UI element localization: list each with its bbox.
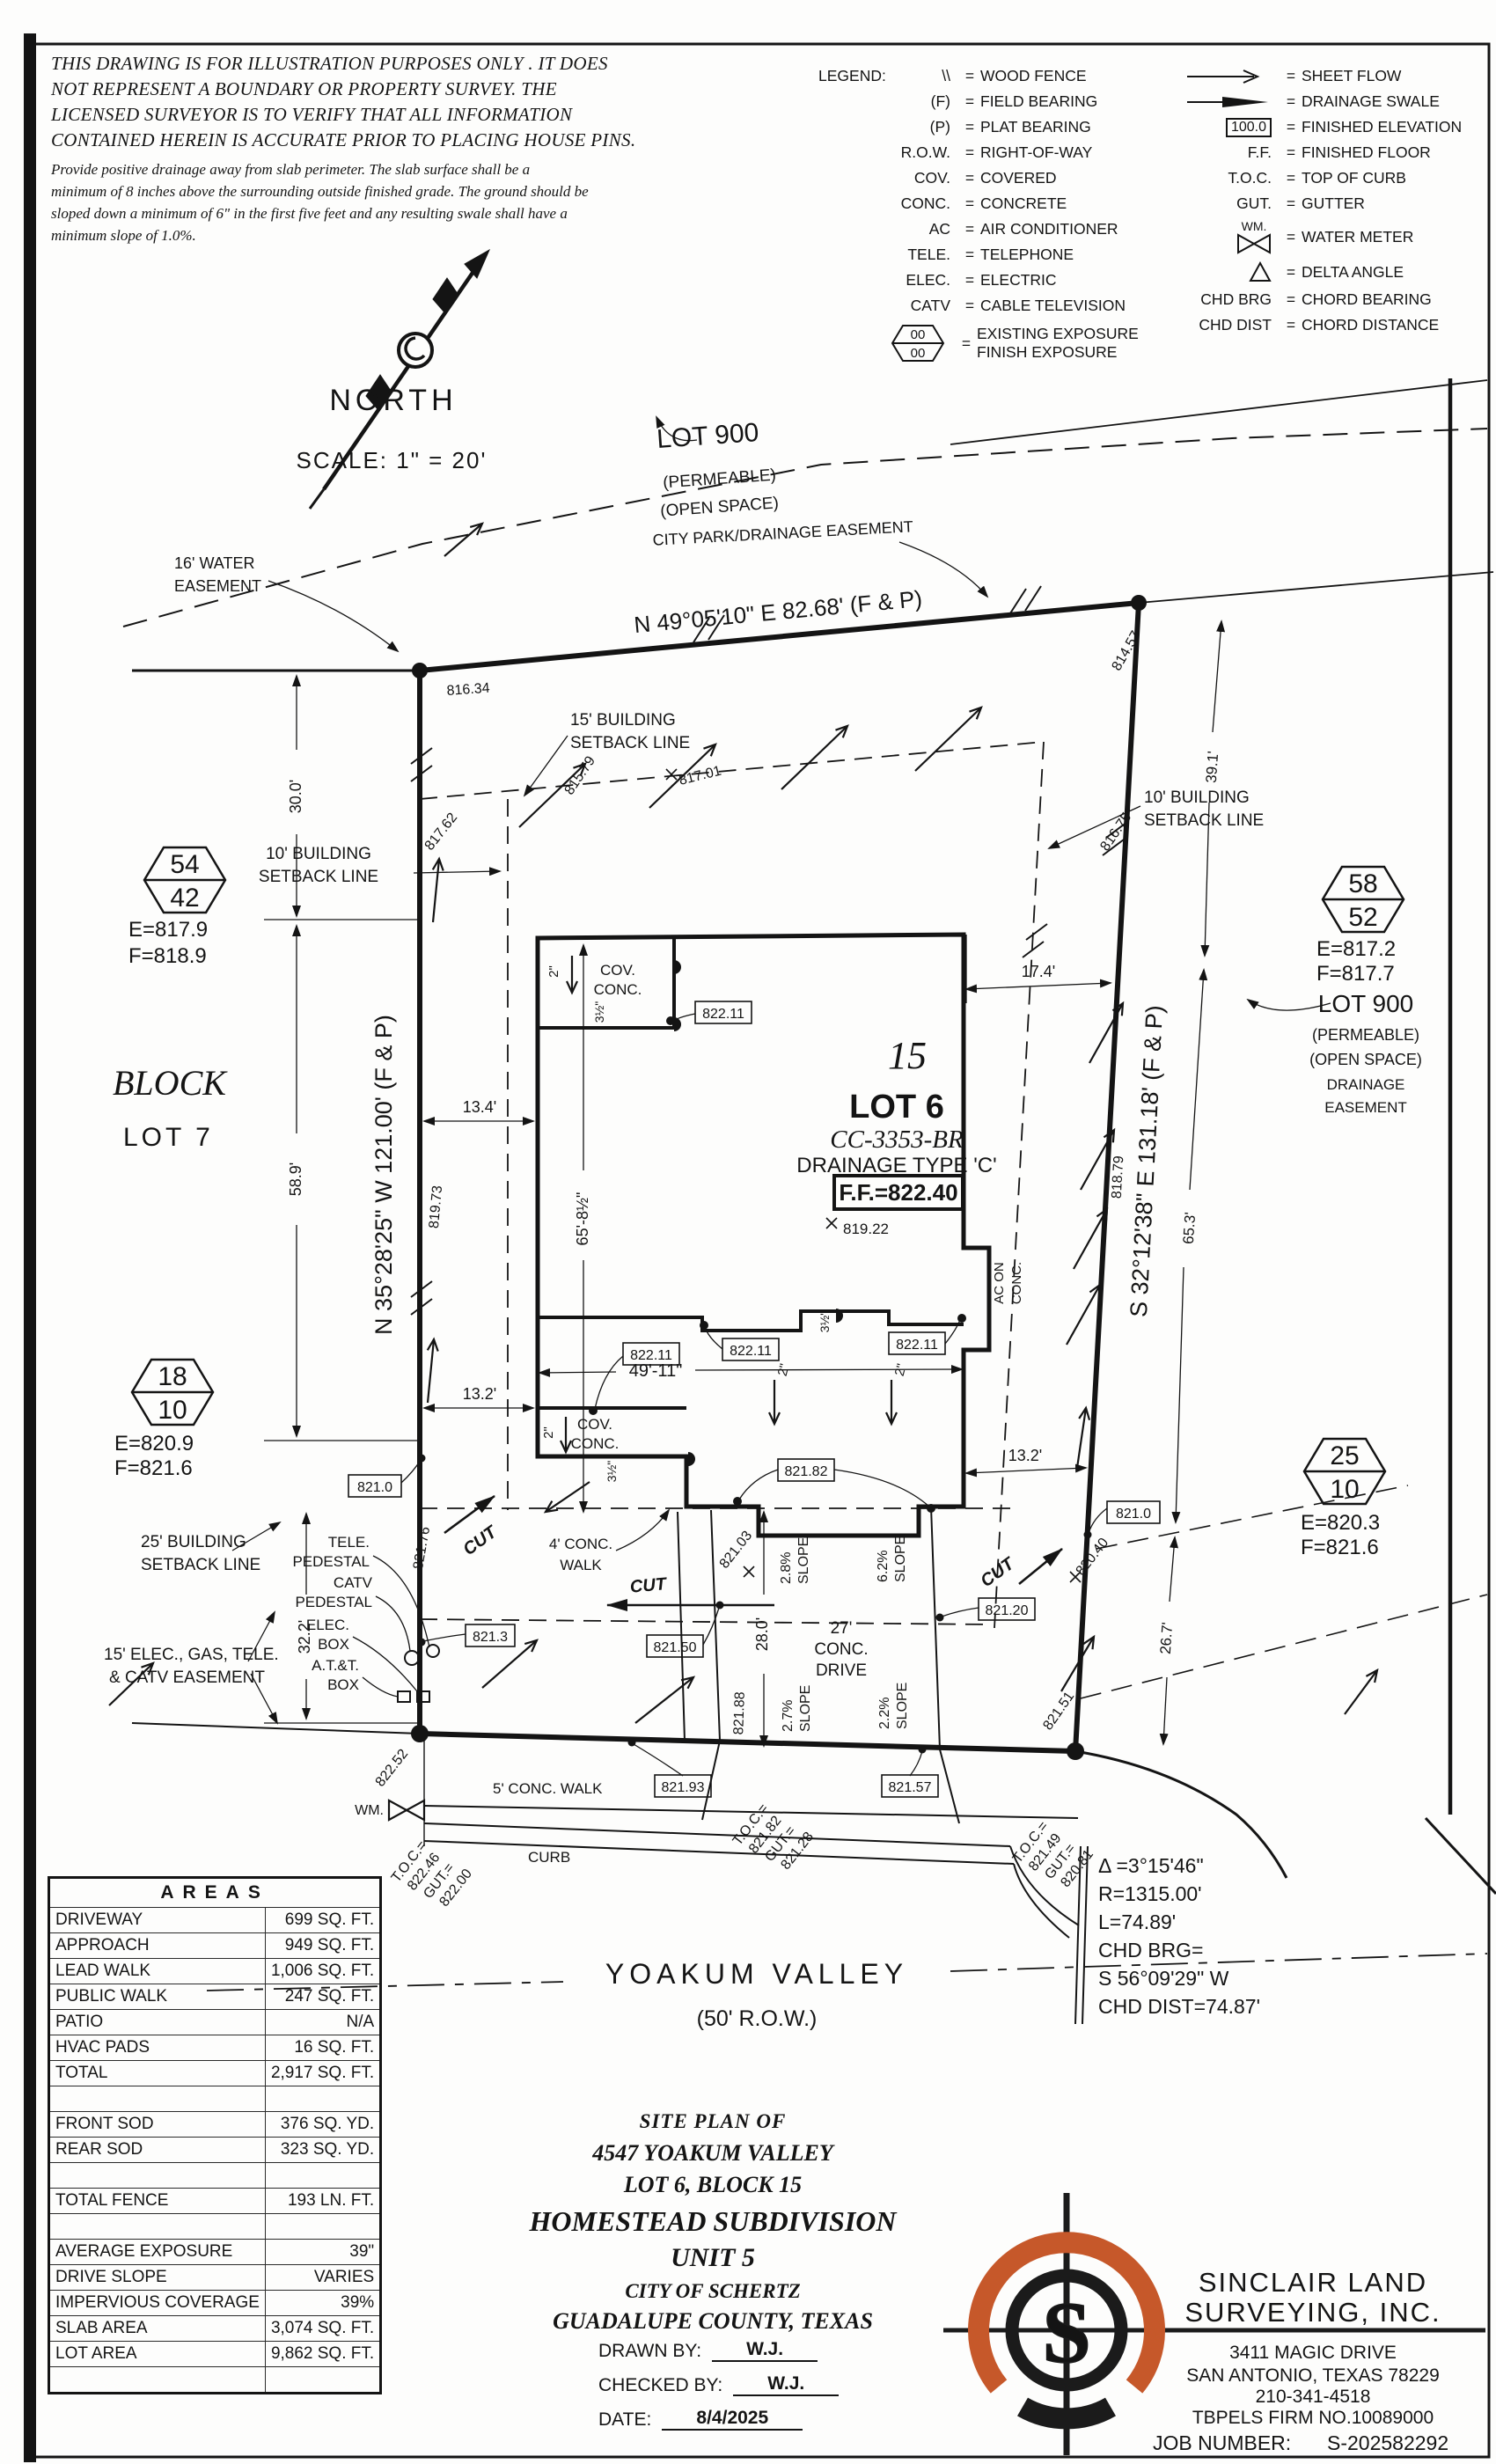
spot-821-76: 821.76 xyxy=(411,1526,433,1571)
city-park-easement: CITY PARK/DRAINAGE EASEMENT xyxy=(652,517,913,548)
hex54-bot: 42 xyxy=(170,884,199,913)
hex25-bot: 10 xyxy=(1330,1475,1359,1504)
area-value: 247 SQ. FT. xyxy=(265,1984,380,2010)
street-name: YOAKUM VALLEY xyxy=(605,1958,908,1990)
scale-label: SCALE: 1" = 20' xyxy=(297,447,488,473)
dim-35-step: 3½" xyxy=(818,1311,832,1332)
equals: = xyxy=(959,118,980,136)
disclaimer-line: CONTAINED HEREIN IS ACCURATE PRIOR TO PL… xyxy=(51,128,790,153)
slope-22: 2.2% xyxy=(877,1698,892,1729)
table-row: DRIVEWAY699 SQ. FT. xyxy=(49,1908,381,1933)
dim-391: 39.1' xyxy=(1203,751,1221,784)
house-block-num: 15 xyxy=(888,1034,927,1077)
equals: = xyxy=(959,271,980,290)
dim-35-porch: 3½" xyxy=(592,1001,606,1023)
adjacent-lot7: LOT 7 xyxy=(123,1123,214,1152)
area-label: DRIVEWAY xyxy=(49,1908,266,1933)
slope-27-word: SLOPE xyxy=(798,1685,813,1732)
dim-2in-porch: 2" xyxy=(546,965,561,978)
ac-sym: AC xyxy=(818,220,959,238)
toc-sym: T.O.C. xyxy=(1166,169,1280,187)
legend-desc: FINISHED ELEVATION xyxy=(1302,118,1462,136)
equals: = xyxy=(1280,118,1302,136)
drainage-note-line: sloped down a minimum of 6" in the first… xyxy=(51,202,790,224)
table-row: HVAC PADS16 SQ. FT. xyxy=(49,2035,381,2061)
patio-conc: CONC. xyxy=(571,1435,620,1452)
hex18-f: F=821.6 xyxy=(114,1456,193,1480)
curve-radius: R=1315.00' xyxy=(1098,1882,1202,1905)
legend-desc: CHORD BEARING xyxy=(1302,290,1432,309)
setback25-l2: SETBACK LINE xyxy=(141,1556,260,1574)
water-meter-icon xyxy=(389,1800,424,1820)
disclaimer-line: THIS DRAWING IS FOR ILLUSTRATION PURPOSE… xyxy=(51,51,790,77)
legend-desc: WOOD FENCE xyxy=(980,67,1087,85)
sheet-flow-icon xyxy=(1187,70,1272,84)
hex25-f: F=821.6 xyxy=(1301,1536,1379,1559)
box-821-93: 821.93 xyxy=(662,1780,705,1795)
area-label: FRONT SOD xyxy=(49,2112,266,2138)
area-label xyxy=(49,2367,266,2394)
firm-addr-1: 3411 MAGIC DRIVE xyxy=(1229,2343,1397,2363)
table-row: DRIVE SLOPEVARIES xyxy=(49,2265,381,2291)
title-line-1: SITE PLAN OF xyxy=(493,2110,933,2133)
hex18-e: E=820.9 xyxy=(114,1432,194,1456)
area-label: REAR SOD xyxy=(49,2138,266,2163)
dim-2in-step1: 2" xyxy=(775,1362,793,1378)
spot-820-40: 820.40 xyxy=(1074,1536,1112,1579)
house-spot-819-22: 819.22 xyxy=(843,1221,889,1237)
legend-desc: CHORD DISTANCE xyxy=(1302,316,1439,334)
street-row: (50' R.O.W.) xyxy=(697,2006,818,2031)
date-value: 8/4/2025 xyxy=(662,2408,803,2431)
ff-sym: F.F. xyxy=(1166,143,1280,162)
checked-by-label: CHECKED BY: xyxy=(598,2375,722,2396)
curve-chd-brg-value: S 56°09'29" W xyxy=(1098,1967,1229,1990)
porch-conc: CONC. xyxy=(594,981,642,998)
dim-653: 65.3' xyxy=(1180,1212,1199,1245)
firm-phone: 210-341-4518 xyxy=(1256,2387,1371,2407)
delta-angle-icon xyxy=(1249,261,1272,282)
area-label: SLAB AREA xyxy=(49,2316,266,2342)
hex54-e: E=817.9 xyxy=(128,918,208,942)
wm-sym-label: WM. xyxy=(1236,219,1272,233)
dim-132-right: 13.2' xyxy=(1008,1447,1042,1464)
street-labels: WM. CURB YOAKUM VALLEY (50' R.O.W.) T.O.… xyxy=(355,1797,1096,2031)
row-sym: R.O.W. xyxy=(818,143,959,162)
box-821-82: 821.82 xyxy=(785,1464,828,1479)
bearing-left: N 35°28'25" W 121.00' (F & P) xyxy=(370,1015,397,1335)
equals: = xyxy=(1280,92,1302,111)
areas-table: AREAS DRIVEWAY699 SQ. FT. APPROACH949 SQ… xyxy=(48,1876,382,2394)
spot-816-75: 816.75 xyxy=(1097,810,1134,854)
drive-conc: CONC. xyxy=(814,1640,868,1659)
area-value: 699 SQ. FT. xyxy=(265,1908,380,1933)
water-easement-l2: EASEMENT xyxy=(174,577,261,595)
logo-letter: S xyxy=(1042,2284,1091,2381)
wm-label: WM. xyxy=(355,1803,384,1818)
area-value: 949 SQ. FT. xyxy=(265,1933,380,1959)
drainage-swale-arrows xyxy=(444,1496,1062,1605)
legend-desc: TOP OF CURB xyxy=(1302,169,1406,187)
title-line-6: CITY OF SCHERTZ xyxy=(493,2280,933,2303)
dim-174: 17.4' xyxy=(1022,963,1055,980)
legend-desc: WATER METER xyxy=(1302,228,1413,246)
area-label: PATIO xyxy=(49,2010,266,2035)
date-label: DATE: xyxy=(598,2409,651,2431)
area-value: 193 LN. FT. xyxy=(265,2189,380,2214)
curve-chd-dist: CHD DIST=74.87' xyxy=(1098,1995,1260,2018)
conc-sym: CONC. xyxy=(818,194,959,213)
house-drainage-type: DRAINAGE TYPE 'C' xyxy=(796,1154,996,1177)
area-value: 1,006 SQ. FT. xyxy=(265,1959,380,1984)
drainage-note-line: Provide positive drainage away from slab… xyxy=(51,158,790,180)
box-821-50: 821.50 xyxy=(654,1640,697,1655)
slope-28: 2.8% xyxy=(779,1552,794,1584)
area-value: 3,074 SQ. FT. xyxy=(265,2316,380,2342)
firm-name-2: SURVEYING, INC. xyxy=(1184,2297,1441,2328)
legend-desc: COVERED xyxy=(980,169,1057,187)
fe-box-2: 822.11 xyxy=(730,1344,772,1359)
area-value: 39% xyxy=(265,2291,380,2316)
legend-desc: GUTTER xyxy=(1302,194,1365,213)
ac-on-label: AC ON xyxy=(992,1262,1007,1304)
north-label: NORTH xyxy=(329,384,457,417)
table-row: LOT AREA9,862 SQ. FT. xyxy=(49,2342,381,2367)
area-label xyxy=(49,2086,266,2112)
table-row: LEAD WALK1,006 SQ. FT. xyxy=(49,1959,381,1984)
elec-box-l2: BOX xyxy=(318,1636,349,1653)
area-label: HVAC PADS xyxy=(49,2035,266,2061)
house-plan-code: CC-3353-BR xyxy=(830,1126,964,1154)
firm-addr-2: SAN ANTONIO, TEXAS 78229 xyxy=(1186,2365,1440,2386)
table-row: APPROACH949 SQ. FT. xyxy=(49,1933,381,1959)
chd-dist-sym: CHD DIST xyxy=(1166,316,1280,334)
table-row xyxy=(49,2367,381,2394)
equals: = xyxy=(1280,143,1302,162)
legend-desc: FINISHED FLOOR xyxy=(1302,143,1431,162)
disclaimer-block: THIS DRAWING IS FOR ILLUSTRATION PURPOSE… xyxy=(51,51,790,246)
title-line-5: UNIT 5 xyxy=(493,2243,933,2273)
water-meter-legend-icon xyxy=(1236,233,1272,254)
dim-30: 30.0' xyxy=(287,780,304,813)
legend-desc: SHEET FLOW xyxy=(1302,67,1401,85)
tele-sym: TELE. xyxy=(818,246,959,264)
lot900-right-drainage: DRAINAGE xyxy=(1327,1076,1405,1093)
bearing-top: N 49°05'10" E 82.68' (F & P) xyxy=(633,585,923,638)
area-label: PUBLIC WALK xyxy=(49,1984,266,2010)
fe-box-1: 822.11 xyxy=(630,1348,672,1363)
equals: = xyxy=(959,246,980,264)
dim-2in-step2: 2" xyxy=(892,1362,910,1378)
spot-818-79: 818.79 xyxy=(1110,1155,1127,1199)
legend-desc: DRAINAGE SWALE xyxy=(1302,92,1440,111)
table-row: SLAB AREA3,074 SQ. FT. xyxy=(49,2316,381,2342)
equals: = xyxy=(959,169,980,187)
curb-label: CURB xyxy=(528,1849,570,1866)
spot-816-34: 816.34 xyxy=(446,681,490,699)
firm-tbpels: TBPELS FIRM NO.10089000 xyxy=(1192,2408,1434,2428)
disclaimer-line: LICENSED SURVEYOR IS TO VERIFY THAT ALL … xyxy=(51,102,790,128)
lot900-right-easement: EASEMENT xyxy=(1324,1099,1407,1116)
firm-name-1: SINCLAIR LAND xyxy=(1199,2267,1427,2298)
setback10-left-l1: 10' BUILDING xyxy=(266,845,371,863)
street-lines xyxy=(207,1823,1487,2024)
lot900-top-openspace: (OPEN SPACE) xyxy=(660,494,780,520)
legend-desc: RIGHT-OF-WAY xyxy=(980,143,1092,162)
wood-fence-icon: \\ xyxy=(887,67,959,85)
firm-info: SINCLAIR LAND SURVEYING, INC. 3411 MAGIC… xyxy=(1153,2267,1448,2454)
hex54-top: 54 xyxy=(170,850,199,879)
equals: = xyxy=(959,194,980,213)
area-value: 16 SQ. FT. xyxy=(265,2035,380,2061)
spot-821-03: 821.03 xyxy=(717,1529,756,1572)
elec-box-l1: ELEC. xyxy=(306,1617,349,1633)
job-number-value: S-202582292 xyxy=(1327,2431,1448,2454)
ac-on-conc-label: AC ON CONC. xyxy=(992,1262,1024,1304)
house-ff: F.F.=822.40 xyxy=(839,1179,957,1206)
hex58-top: 58 xyxy=(1348,869,1377,898)
box-821-57: 821.57 xyxy=(889,1780,932,1795)
dim-2in-patio: 2" xyxy=(541,1426,556,1439)
legend-desc: FIELD BEARING xyxy=(980,92,1097,111)
drainage-swale-icon xyxy=(1187,95,1272,109)
att-box-l1: A.T.&T. xyxy=(312,1657,359,1674)
area-label: LOT AREA xyxy=(49,2342,266,2367)
table-row: PUBLIC WALK247 SQ. FT. xyxy=(49,1984,381,2010)
utility-labels: TELE. PEDESTAL CATV PEDESTAL ELEC. BOX A… xyxy=(292,1534,372,1693)
catv-pedestal-l1: CATV xyxy=(334,1574,373,1591)
equals: = xyxy=(1280,194,1302,213)
water-easement-l1: 16' WATER xyxy=(174,554,254,572)
equals: = xyxy=(1280,228,1302,246)
legend-desc: PLAT BEARING xyxy=(980,118,1091,136)
cut-label-1: CUT xyxy=(459,1522,502,1559)
area-value: VARIES xyxy=(265,2265,380,2291)
box-821-20: 821.20 xyxy=(986,1603,1029,1618)
equals: = xyxy=(956,334,977,353)
signoff-block: DRAWN BY:W.J. CHECKED BY:W.J. DATE:8/4/2… xyxy=(598,2339,915,2442)
fe-box-porch: 822.11 xyxy=(702,1007,744,1022)
area-value xyxy=(265,2367,380,2394)
legend-desc: DELTA ANGLE xyxy=(1302,263,1404,282)
elec-sym: ELEC. xyxy=(818,271,959,290)
catv-sym: CATV xyxy=(818,297,959,315)
hex18-bot: 10 xyxy=(158,1396,187,1425)
curve-data: Δ =3°15'46" R=1315.00' L=74.89' CHD BRG=… xyxy=(1098,1854,1260,2018)
dim-280: 28.0' xyxy=(753,1617,771,1651)
walk4-l1: 4' CONC. xyxy=(549,1536,612,1552)
table-row: AVERAGE EXPOSURE39" xyxy=(49,2240,381,2265)
gut-sym: GUT. xyxy=(1166,194,1280,213)
easement15-l2: & CATV EASEMENT xyxy=(109,1668,265,1687)
porch-cov: COV. xyxy=(600,962,635,979)
tele-pedestal-l1: TELE. xyxy=(328,1534,370,1551)
equals: = xyxy=(1280,316,1302,334)
cov-sym: COV. xyxy=(818,169,959,187)
spot-822-52: 822.52 xyxy=(373,1747,412,1790)
equals: = xyxy=(1280,67,1302,85)
title-block: SITE PLAN OF 4547 YOAKUM VALLEY LOT 6, B… xyxy=(493,2110,933,2335)
area-label xyxy=(49,2214,266,2240)
legend-desc: ELECTRIC xyxy=(980,271,1057,290)
dim-35-patio: 3½" xyxy=(605,1461,619,1482)
setback15-l1: 15' BUILDING xyxy=(570,711,676,730)
house-lot: LOT 6 xyxy=(849,1089,944,1126)
legend-title: LEGEND: xyxy=(818,67,887,85)
hex25-top: 25 xyxy=(1330,1441,1359,1470)
area-value: 2,917 SQ. FT. xyxy=(265,2061,380,2086)
curve-delta: Δ =3°15'46" xyxy=(1098,1854,1204,1877)
hex58-e: E=817.2 xyxy=(1316,937,1396,961)
curve-length: L=74.89' xyxy=(1098,1910,1176,1933)
lot-corner-monuments xyxy=(411,595,1147,1760)
area-value xyxy=(265,2214,380,2240)
walk4-l2: WALK xyxy=(560,1557,602,1573)
drive-27: 27' xyxy=(831,1619,853,1638)
field-bearing-sym: (F) xyxy=(818,92,959,111)
area-value xyxy=(265,2163,380,2189)
boundary-hatch-ticks xyxy=(411,586,1127,1315)
hex25-e: E=820.3 xyxy=(1301,1511,1380,1535)
spot-817-62: 817.62 xyxy=(422,810,461,854)
exposure-top: 00 xyxy=(911,327,926,342)
exposure-bottom: 00 xyxy=(911,346,926,361)
legend-desc: EXISTING EXPOSURE xyxy=(977,325,1139,343)
walk5-label: 5' CONC. WALK xyxy=(493,1780,603,1797)
adjacent-block: BLOCK xyxy=(113,1063,228,1103)
title-line-4: HOMESTEAD SUBDIVISION xyxy=(493,2205,933,2238)
equals: = xyxy=(1280,290,1302,309)
checked-by-value: W.J. xyxy=(733,2373,839,2396)
dimension-lines xyxy=(264,621,1221,1746)
areas-title: AREAS xyxy=(49,1878,381,1908)
table-row: FRONT SOD376 SQ. YD. xyxy=(49,2112,381,2138)
dim-132-left: 13.2' xyxy=(463,1385,496,1403)
box-821-0-left: 821.0 xyxy=(357,1480,392,1495)
area-value xyxy=(265,2086,380,2112)
drawn-by-label: DRAWN BY: xyxy=(598,2341,701,2362)
chd-brg-sym: CHD BRG xyxy=(1166,290,1280,309)
fe-box-3: 822.11 xyxy=(896,1338,938,1353)
title-line-3: LOT 6, BLOCK 15 xyxy=(493,2172,933,2198)
patio-cov: COV. xyxy=(577,1416,612,1433)
curve-chd-brg-label: CHD BRG= xyxy=(1098,1939,1204,1962)
drainage-note-line: minimum slope of 1.0%. xyxy=(51,224,790,246)
area-value: 376 SQ. YD. xyxy=(265,2112,380,2138)
slope-28-word: SLOPE xyxy=(796,1537,811,1584)
table-row: PATION/A xyxy=(49,2010,381,2035)
hex58-bot: 52 xyxy=(1348,903,1377,932)
area-label: TOTAL xyxy=(49,2061,266,2086)
setback10-right-l1: 10' BUILDING xyxy=(1144,788,1250,807)
slope-27: 2.7% xyxy=(781,1700,796,1732)
drainage-note-line: minimum of 8 inches above the surroundin… xyxy=(51,180,790,202)
table-row: TOTAL FENCE193 LN. FT. xyxy=(49,2189,381,2214)
area-label: LEAD WALK xyxy=(49,1959,266,1984)
slope-labels: 2.8%SLOPE 6.2%SLOPE 2.7%SLOPE 2.2%SLOPE … xyxy=(459,1522,1019,1797)
legend-desc: FINISH EXPOSURE xyxy=(977,343,1139,362)
legend-desc: CABLE TELEVISION xyxy=(980,297,1126,315)
tele-pedestal-l2: PEDESTAL xyxy=(292,1553,370,1570)
setback10-right-l2: SETBACK LINE xyxy=(1144,811,1264,830)
spot-817-01: 817.01 xyxy=(678,764,723,788)
area-label xyxy=(49,2163,266,2189)
lot900-right-openspace: (OPEN SPACE) xyxy=(1309,1051,1422,1068)
equals: = xyxy=(959,220,980,238)
hex54-f: F=818.9 xyxy=(128,944,207,968)
finished-elev-sym: 100.0 xyxy=(1226,118,1272,137)
plan-labels: LOT 900 (PERMEABLE) (OPEN SPACE) CITY PA… xyxy=(104,418,1422,1790)
area-value: 323 SQ. YD. xyxy=(265,2138,380,2163)
lot900-right-permeable: (PERMEABLE) xyxy=(1312,1026,1419,1044)
legend-desc: AIR CONDITIONER xyxy=(980,220,1118,238)
area-label: AVERAGE EXPOSURE xyxy=(49,2240,266,2265)
table-row: IMPERVIOUS COVERAGE39% xyxy=(49,2291,381,2316)
table-row xyxy=(49,2163,381,2189)
exposure-hex-icon: 00 00 xyxy=(885,322,950,364)
lot900-top-permeable: (PERMEABLE) xyxy=(663,466,777,493)
dim-4911: 49'-11" xyxy=(629,1361,683,1381)
table-row: REAR SOD323 SQ. YD. xyxy=(49,2138,381,2163)
legend-desc: CONCRETE xyxy=(980,194,1067,213)
equals: = xyxy=(959,297,980,315)
dim-134: 13.4' xyxy=(463,1098,496,1116)
att-box-l2: BOX xyxy=(327,1676,359,1693)
dim-267: 26.7' xyxy=(1157,1622,1176,1655)
area-label: DRIVE SLOPE xyxy=(49,2265,266,2291)
spot-821-88: 821.88 xyxy=(731,1691,748,1735)
drive-drive: DRIVE xyxy=(816,1661,867,1680)
box-821-0-right: 821.0 xyxy=(1116,1507,1151,1522)
area-value: N/A xyxy=(265,2010,380,2035)
lot900-top-name: LOT 900 xyxy=(656,418,759,454)
setback25-l1: 25' BUILDING xyxy=(141,1533,246,1551)
hex58-f: F=817.7 xyxy=(1316,962,1395,986)
site-plan-sheet: NORTH SCALE: 1" = 20' xyxy=(0,0,1496,2464)
box-821-3: 821.3 xyxy=(473,1630,508,1645)
area-label: TOTAL FENCE xyxy=(49,2189,266,2214)
equals: = xyxy=(1280,169,1302,187)
title-line-7: GUADALUPE COUNTY, TEXAS xyxy=(493,2308,933,2335)
table-row xyxy=(49,2086,381,2112)
hex-markers xyxy=(132,847,1404,1504)
plat-bearing-sym: (P) xyxy=(818,118,959,136)
equals: = xyxy=(959,92,980,111)
drawn-by-value: W.J. xyxy=(712,2339,818,2362)
area-value: 39" xyxy=(265,2240,380,2265)
catv-pedestal-l2: PEDESTAL xyxy=(295,1594,372,1610)
lot900-right-name: LOT 900 xyxy=(1318,990,1413,1017)
slope-62: 6.2% xyxy=(876,1551,891,1582)
legend-desc: TELEPHONE xyxy=(980,246,1074,264)
setback15-l2: SETBACK LINE xyxy=(570,734,690,752)
dim-589: 58.9' xyxy=(287,1162,304,1196)
spot-821-51: 821.51 xyxy=(1040,1689,1077,1733)
spot-819-73: 819.73 xyxy=(427,1184,445,1228)
hex18-top: 18 xyxy=(158,1362,187,1391)
area-label: APPROACH xyxy=(49,1933,266,1959)
equals: = xyxy=(1280,263,1302,282)
slope-22-word: SLOPE xyxy=(895,1683,910,1729)
area-value: 9,862 SQ. FT. xyxy=(265,2342,380,2367)
cut-label-2: CUT xyxy=(629,1574,669,1597)
ac-conc-label: CONC. xyxy=(1009,1262,1024,1304)
spot-815-79: 815.79 xyxy=(562,753,599,797)
dim-658: 65'-8½" xyxy=(574,1192,591,1246)
title-line-2: 4547 YOAKUM VALLEY xyxy=(493,2140,933,2167)
job-number-label: JOB NUMBER: xyxy=(1153,2431,1291,2454)
equals: = xyxy=(959,143,980,162)
